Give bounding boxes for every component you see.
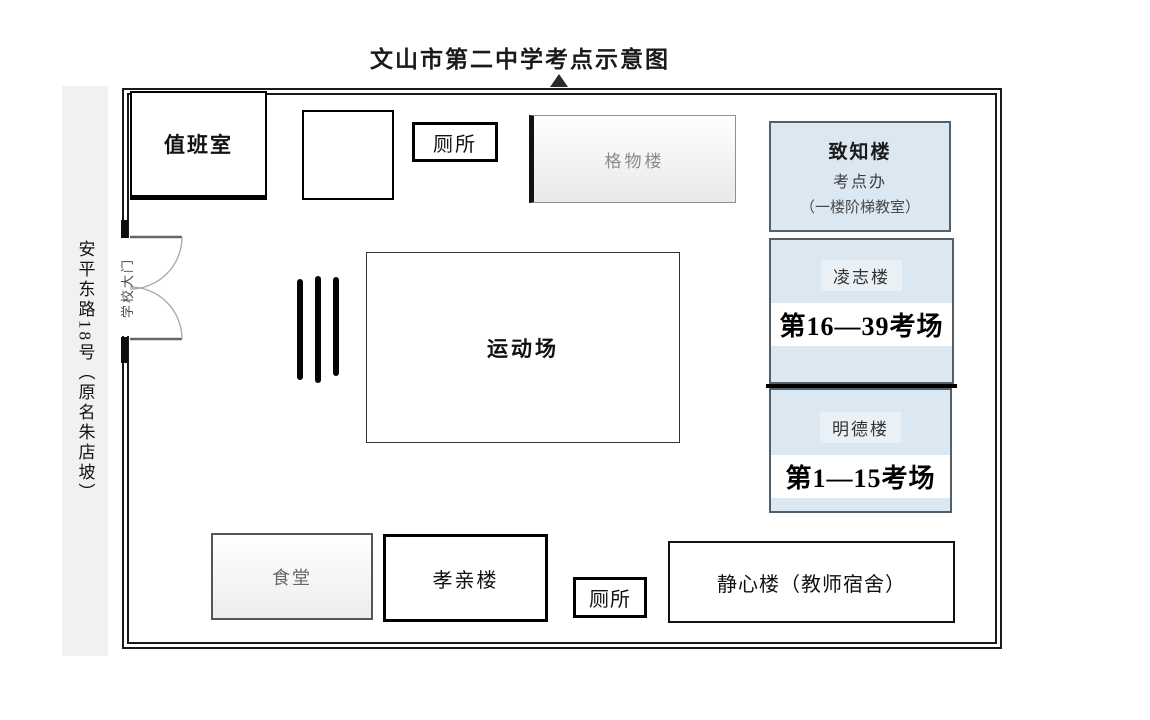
- building-unlabeled-square: [302, 110, 394, 200]
- title-pointer-triangle-icon: [550, 74, 568, 87]
- exam-site-map: 文山市第二中学考点示意图 安平东路18号（原名朱店坡） 学校大门 值班室 厕所 …: [0, 0, 1150, 720]
- gate-label: 学校大门: [120, 253, 136, 323]
- building-zhizhi: 致知楼 考点办 （一楼阶梯教室）: [769, 121, 951, 232]
- mingde-exam-rooms: 第1—15考场: [771, 455, 950, 498]
- zhizhi-name: 致知楼: [828, 137, 891, 164]
- flag-pole-icon: [315, 276, 321, 383]
- canteen-label: 食堂: [272, 564, 312, 590]
- street-strip: 安平东路18号（原名朱店坡）: [62, 86, 108, 656]
- jingxin-label: 静心楼（教师宿舍）: [717, 568, 906, 597]
- sports-field-label: 运动场: [487, 333, 559, 363]
- street-address-label: 安平东路18号（原名朱店坡）: [73, 240, 98, 503]
- mingde-name: 明德楼: [820, 412, 901, 443]
- building-canteen: 食堂: [211, 533, 373, 620]
- flag-pole-icon: [297, 279, 303, 380]
- zhizhi-note: （一楼阶梯教室）: [800, 196, 920, 217]
- lingzhi-exam-rooms: 第16—39考场: [771, 303, 952, 346]
- lingzhi-name: 凌志楼: [821, 260, 902, 291]
- xiaoqin-label: 孝亲楼: [433, 564, 499, 593]
- building-xiaoqin: 孝亲楼: [383, 534, 548, 622]
- building-toilet-south: 厕所: [573, 577, 647, 618]
- duty-room-label: 值班室: [164, 129, 233, 159]
- building-lingzhi: 凌志楼 第16—39考场: [769, 238, 954, 384]
- building-gewu: 格物楼: [529, 115, 736, 203]
- zhizhi-subtitle: 考点办: [833, 168, 887, 192]
- gewu-label: 格物楼: [605, 147, 665, 172]
- toilet-north-label: 厕所: [433, 128, 477, 157]
- building-jingxin: 静心楼（教师宿舍）: [668, 541, 955, 623]
- flag-pole-icon: [333, 277, 339, 376]
- building-toilet-north: 厕所: [412, 122, 498, 162]
- toilet-south-label: 厕所: [589, 583, 631, 612]
- sports-field: 运动场: [366, 252, 680, 443]
- building-duty-room: 值班室: [130, 91, 267, 200]
- page-title: 文山市第二中学考点示意图: [320, 40, 720, 74]
- building-mingde: 明德楼 第1—15考场: [769, 388, 952, 513]
